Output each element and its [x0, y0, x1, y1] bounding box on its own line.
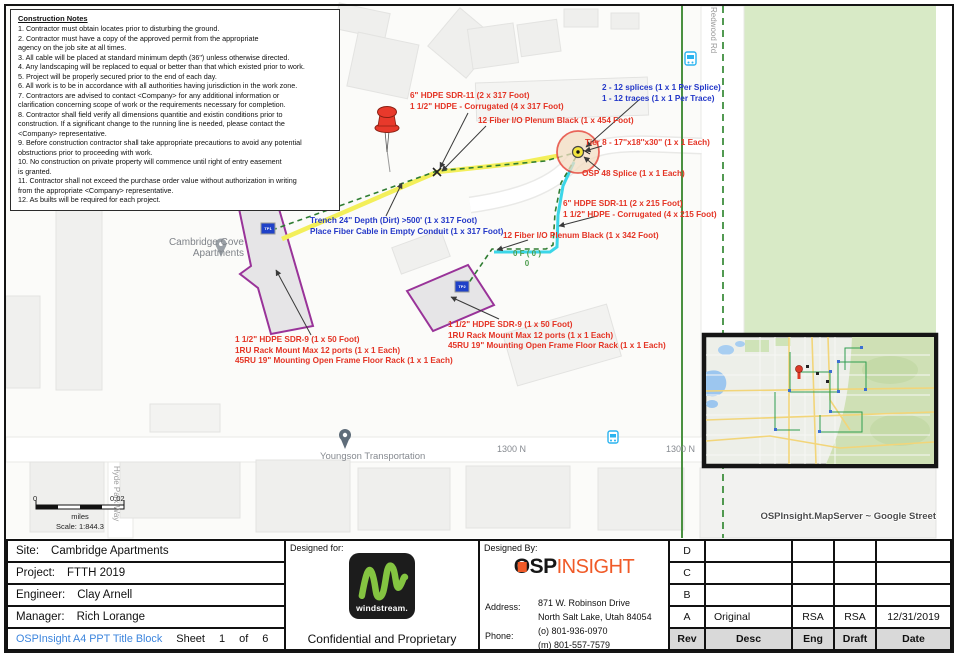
desc-d [705, 540, 792, 562]
map-canvas[interactable]: Construction Notes 1. Contractor must ob… [0, 0, 960, 539]
eng-d [792, 540, 834, 562]
annotation-conduit-317: 6" HDPE SDR-11 (2 x 317 Foot) 1 1/2" HDP… [410, 91, 564, 112]
annotation-vault: Tier 8 - 17''x18''x30'' (1 x 1 Each) [585, 138, 710, 149]
date-header: Date [876, 628, 951, 650]
desc-b [705, 584, 792, 606]
manager-row: Manager: Rich Lorange [6, 605, 286, 629]
revision-table: D C B A Original [668, 539, 952, 651]
address-label: Address: [485, 602, 521, 612]
draft-header: Draft [834, 628, 876, 650]
rev-d: D [669, 540, 705, 562]
scale-zero: 0 [33, 494, 37, 503]
address-line1: 871 W. Robinson Drive [538, 597, 652, 611]
confidential-note: Confidential and Proprietary [286, 632, 478, 646]
bus-stop-icon[interactable] [685, 52, 696, 65]
phone-value: (o) 801-936-0970 (m) 801-557-7579 [538, 625, 610, 652]
osp-logo-orange-counter [518, 562, 527, 572]
annotation-rack-left: 1 1/2" HDPE SDR-9 (1 x 50 Foot) 1RU Rack… [235, 335, 453, 367]
insight-logo-text: INSIGHT [557, 556, 635, 578]
engineer-label: Engineer: [16, 589, 65, 601]
project-label: Project: [16, 567, 55, 579]
eng-b [792, 584, 834, 606]
project-row: Project: FTTH 2019 [6, 561, 286, 585]
plan-sheet: Construction Notes 1. Contractor must ob… [0, 0, 960, 657]
annotation-conduit-215: 6" HDPE SDR-11 (2 x 215 Foot) 1 1/2" HDP… [563, 199, 717, 220]
label-apartments: Cambridge Cove Apartments [140, 237, 244, 259]
sheet-number: 1 [219, 633, 225, 645]
address-value: 871 W. Robinson Drive North Salt Lake, U… [538, 597, 652, 624]
windstream-wordmark: windstream. [349, 603, 415, 613]
label-1300n-b: 1300 N [666, 444, 695, 454]
date-c [876, 562, 951, 584]
osp-logo-text: OSP [514, 555, 557, 578]
sheets-total: 6 [262, 633, 268, 645]
draft-a: RSA [834, 606, 876, 628]
desc-a: Original [705, 606, 792, 628]
sheet-label: Sheet [176, 633, 205, 645]
rev-row-a: A Original RSA RSA 12/31/2019 [669, 606, 951, 628]
windstream-squiggle-icon [349, 557, 415, 603]
rev-row-c: C [669, 562, 951, 584]
engineer-row: Engineer: Clay Arnell [6, 583, 286, 607]
label-1300n-a: 1300 N [497, 444, 526, 454]
bus-stop-icon-2[interactable] [608, 431, 618, 443]
phone-label: Phone: [485, 631, 514, 641]
eng-header: Eng [792, 628, 834, 650]
annotation-osp-splice: OSP 48 Splice (1 x 1 Each) [582, 169, 685, 180]
annotation-fiber-342: 12 Fiber I/O Plenum Black (1 x 342 Foot) [503, 231, 659, 242]
titleblock-info-column: Site: Cambridge Apartments Project: FTTH… [6, 539, 286, 651]
construction-notes-body: 1. Contractor must obtain locates prior … [18, 24, 332, 205]
phone-office: (o) 801-936-0970 [538, 625, 610, 639]
eng-a: RSA [792, 606, 834, 628]
label-redwood-rd: Redwood Rd [709, 7, 718, 67]
project-value: FTTH 2019 [67, 567, 125, 579]
map-attribution: OSPInsight.MapServer ~ Google Street [700, 511, 936, 522]
desc-c [705, 562, 792, 584]
of-label: of [239, 633, 248, 645]
annotation-rack-right: 1 1/2" HDPE SDR-9 (1 x 50 Foot) 1RU Rack… [448, 320, 666, 352]
designed-by-label: Designed By: [484, 543, 538, 553]
windstream-logo: windstream. [349, 553, 415, 619]
draft-d [834, 540, 876, 562]
date-d [876, 540, 951, 562]
sheet-row: OSPInsight A4 PPT Title Block Sheet 1 of… [6, 627, 286, 651]
phone-mobile: (m) 801-557-7579 [538, 639, 610, 653]
rev-row-d: D [669, 540, 951, 562]
site-row: Site: Cambridge Apartments [6, 539, 286, 563]
rev-header: Rev [669, 628, 705, 650]
scale-ratio: Scale: 1:844.3 [36, 522, 124, 531]
ospinsight-logo: OSPINSIGHT [514, 555, 634, 579]
manager-label: Manager: [16, 611, 65, 623]
annotation-splices: 2 - 12 splices (1 x 1 Per Splice) 1 - 12… [602, 83, 721, 104]
tp-label-2: TP2 [455, 284, 469, 289]
rev-a: A [669, 606, 705, 628]
annotation-trench: Trench 24'' Depth (Dirt) >500' (1 x 317 … [310, 216, 503, 237]
address-line2: North Salt Lake, Utah 84054 [538, 611, 652, 625]
designed-for-label: Designed for: [290, 543, 344, 553]
overview-inset-map[interactable] [704, 335, 936, 466]
annotation-fiber-454: 12 Fiber I/O Plenum Black (1 x 454 Foot) [478, 116, 634, 127]
site-value: Cambridge Apartments [51, 545, 169, 557]
draft-b [834, 584, 876, 606]
rev-c: C [669, 562, 705, 584]
date-a: 12/31/2019 [876, 606, 951, 628]
rev-header-row: Rev Desc Eng Draft Date [669, 628, 951, 650]
draft-c [834, 562, 876, 584]
eng-c [792, 562, 834, 584]
manager-value: Rich Lorange [77, 611, 145, 623]
rev-b: B [669, 584, 705, 606]
site-label: Site: [16, 545, 39, 557]
construction-notes: Construction Notes 1. Contractor must ob… [10, 9, 340, 211]
label-youngson: Youngson Transportation [320, 451, 425, 462]
scale-unit: miles [36, 512, 124, 521]
designed-by-box: Designed By: OSPINSIGHT Address: 871 W. … [478, 539, 670, 651]
doc-name-link[interactable]: OSPInsight A4 PPT Title Block [16, 633, 162, 645]
desc-header: Desc [705, 628, 792, 650]
date-b [876, 584, 951, 606]
engineer-value: Clay Arnell [77, 589, 132, 601]
designed-for-box: Designed for: windstream. Confidential a… [284, 539, 480, 651]
annotation-fiber-count: 0 F ( 0 ) 0 [505, 249, 549, 270]
tp-label-1: TP1 [261, 226, 275, 231]
scale-max: 0.02 [110, 494, 125, 503]
construction-notes-title: Construction Notes [18, 14, 332, 23]
rev-row-b: B [669, 584, 951, 606]
